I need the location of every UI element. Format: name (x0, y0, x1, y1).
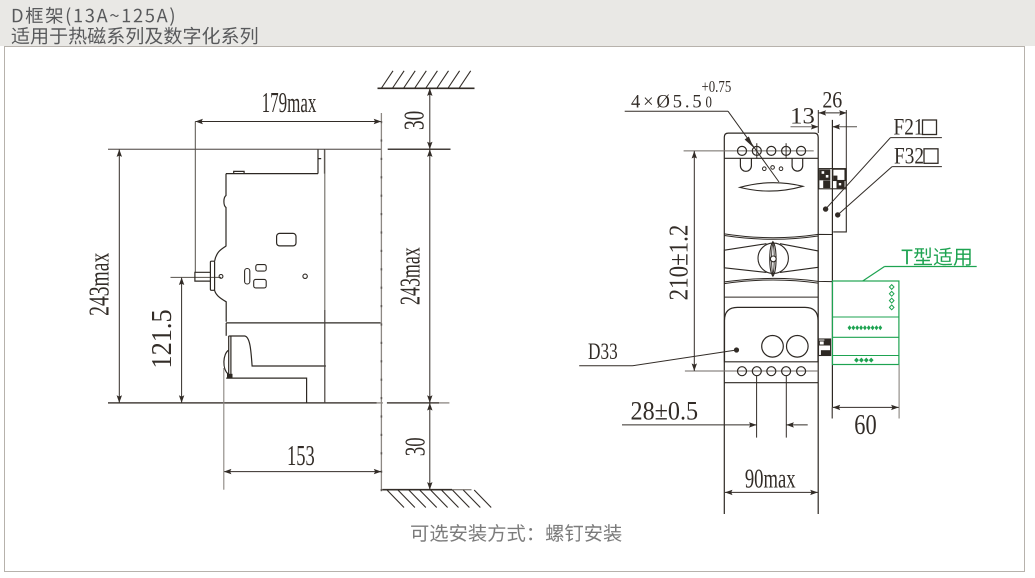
svg-text:F21: F21 (894, 114, 924, 140)
svg-text:F32: F32 (894, 143, 924, 169)
svg-text:60: 60 (854, 410, 876, 441)
svg-text:0: 0 (706, 94, 712, 112)
svg-text:210±1.2: 210±1.2 (665, 225, 694, 301)
svg-text:4×Ø5.5: 4×Ø5.5 (631, 93, 705, 113)
svg-text:121.5: 121.5 (146, 309, 177, 368)
svg-text:30: 30 (401, 437, 432, 456)
svg-text:26: 26 (822, 87, 842, 113)
svg-text:243max: 243max (396, 247, 427, 305)
svg-text:13: 13 (790, 104, 815, 129)
svg-text:30: 30 (400, 111, 430, 130)
svg-text:28±0.5: 28±0.5 (631, 398, 699, 426)
svg-text:90max: 90max (745, 464, 796, 494)
svg-text:D33: D33 (588, 340, 618, 365)
svg-text:243max: 243max (84, 253, 115, 316)
svg-text:179max: 179max (262, 88, 317, 119)
svg-text:153: 153 (287, 441, 315, 472)
